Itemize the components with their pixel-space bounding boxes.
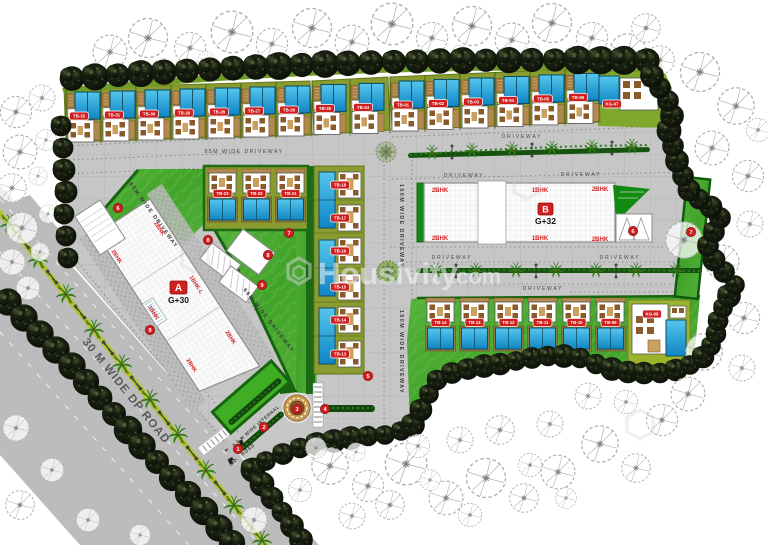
svg-text:TB-16: TB-16 <box>334 249 347 254</box>
svg-text:DRIVEWAY: DRIVEWAY <box>444 173 485 179</box>
svg-text:DRIVEWAY: DRIVEWAY <box>561 172 602 178</box>
svg-text:2BHK: 2BHK <box>432 236 449 242</box>
svg-text:TB-27: TB-27 <box>248 109 261 114</box>
svg-text:TB-09: TB-09 <box>604 320 617 325</box>
svg-text:2BHK: 2BHK <box>432 188 449 194</box>
svg-text:2BHK: 2BHK <box>592 237 609 243</box>
svg-text:G+32: G+32 <box>535 216 556 226</box>
svg-text:9: 9 <box>260 283 263 289</box>
svg-text:TB-01: TB-01 <box>397 103 410 108</box>
svg-text:7: 7 <box>689 230 692 236</box>
svg-text:TB-28: TB-28 <box>213 110 226 115</box>
svg-text:6: 6 <box>116 206 119 212</box>
svg-text:DRIVEWAY: DRIVEWAY <box>600 255 641 261</box>
svg-text:2: 2 <box>262 425 265 431</box>
svg-text:TB-13: TB-13 <box>334 352 347 357</box>
svg-text:3: 3 <box>295 407 298 413</box>
svg-text:8: 8 <box>206 238 209 244</box>
svg-text:7: 7 <box>287 231 290 237</box>
svg-text:TB-18: TB-18 <box>334 183 347 188</box>
svg-text:TB-29: TB-29 <box>178 111 191 116</box>
svg-text:DRIVEWAY: DRIVEWAY <box>502 134 543 140</box>
svg-text:A: A <box>175 283 182 294</box>
svg-text:TB-14: TB-14 <box>434 320 447 325</box>
svg-text:2BHK: 2BHK <box>592 187 609 193</box>
svg-text:TB-02: TB-02 <box>432 101 445 106</box>
svg-text:TB-31: TB-31 <box>108 113 121 118</box>
svg-text:9: 9 <box>148 328 151 334</box>
svg-text:TB-12: TB-12 <box>502 320 515 325</box>
svg-text:TB-22: TB-22 <box>250 191 263 196</box>
svg-text:TB-24: TB-24 <box>357 105 370 110</box>
svg-text:6: 6 <box>631 229 634 235</box>
svg-text:TB-23: TB-23 <box>216 191 229 196</box>
svg-text:TB-17: TB-17 <box>334 216 347 221</box>
svg-text:TB-14: TB-14 <box>334 318 347 323</box>
svg-text:TB-21: TB-21 <box>284 191 297 196</box>
svg-text:DRIVEWAY: DRIVEWAY <box>523 286 564 292</box>
svg-text:KG-07: KG-07 <box>606 102 619 107</box>
svg-text:TB-10: TB-10 <box>570 320 583 325</box>
svg-text:95M WIDE DRIVEWAY: 95M WIDE DRIVEWAY <box>204 149 283 155</box>
svg-text:TB-04: TB-04 <box>502 98 515 103</box>
svg-text:G+30: G+30 <box>168 295 189 305</box>
svg-text:TB-32: TB-32 <box>73 114 86 119</box>
svg-text:TB-06: TB-06 <box>572 95 585 100</box>
svg-text:1: 1 <box>236 447 239 453</box>
svg-text:.com: .com <box>450 264 501 289</box>
svg-text:TB-11: TB-11 <box>537 320 550 325</box>
svg-text:8: 8 <box>266 253 269 259</box>
svg-text:1BHK: 1BHK <box>532 236 549 242</box>
svg-text:TB-25: TB-25 <box>319 106 332 111</box>
svg-text:5: 5 <box>366 374 369 380</box>
svg-text:TB-26: TB-26 <box>283 108 296 113</box>
svg-text:TB-13: TB-13 <box>468 320 481 325</box>
svg-text:KG-08: KG-08 <box>646 312 659 317</box>
svg-text:150M WIDE DRIVEWAY: 150M WIDE DRIVEWAY <box>398 310 404 394</box>
svg-text:TB-05: TB-05 <box>537 97 550 102</box>
svg-text:TB-03: TB-03 <box>467 100 480 105</box>
svg-text:TB-30: TB-30 <box>143 112 156 117</box>
svg-text:Housivity: Housivity <box>318 256 458 291</box>
svg-text:B: B <box>542 205 549 215</box>
